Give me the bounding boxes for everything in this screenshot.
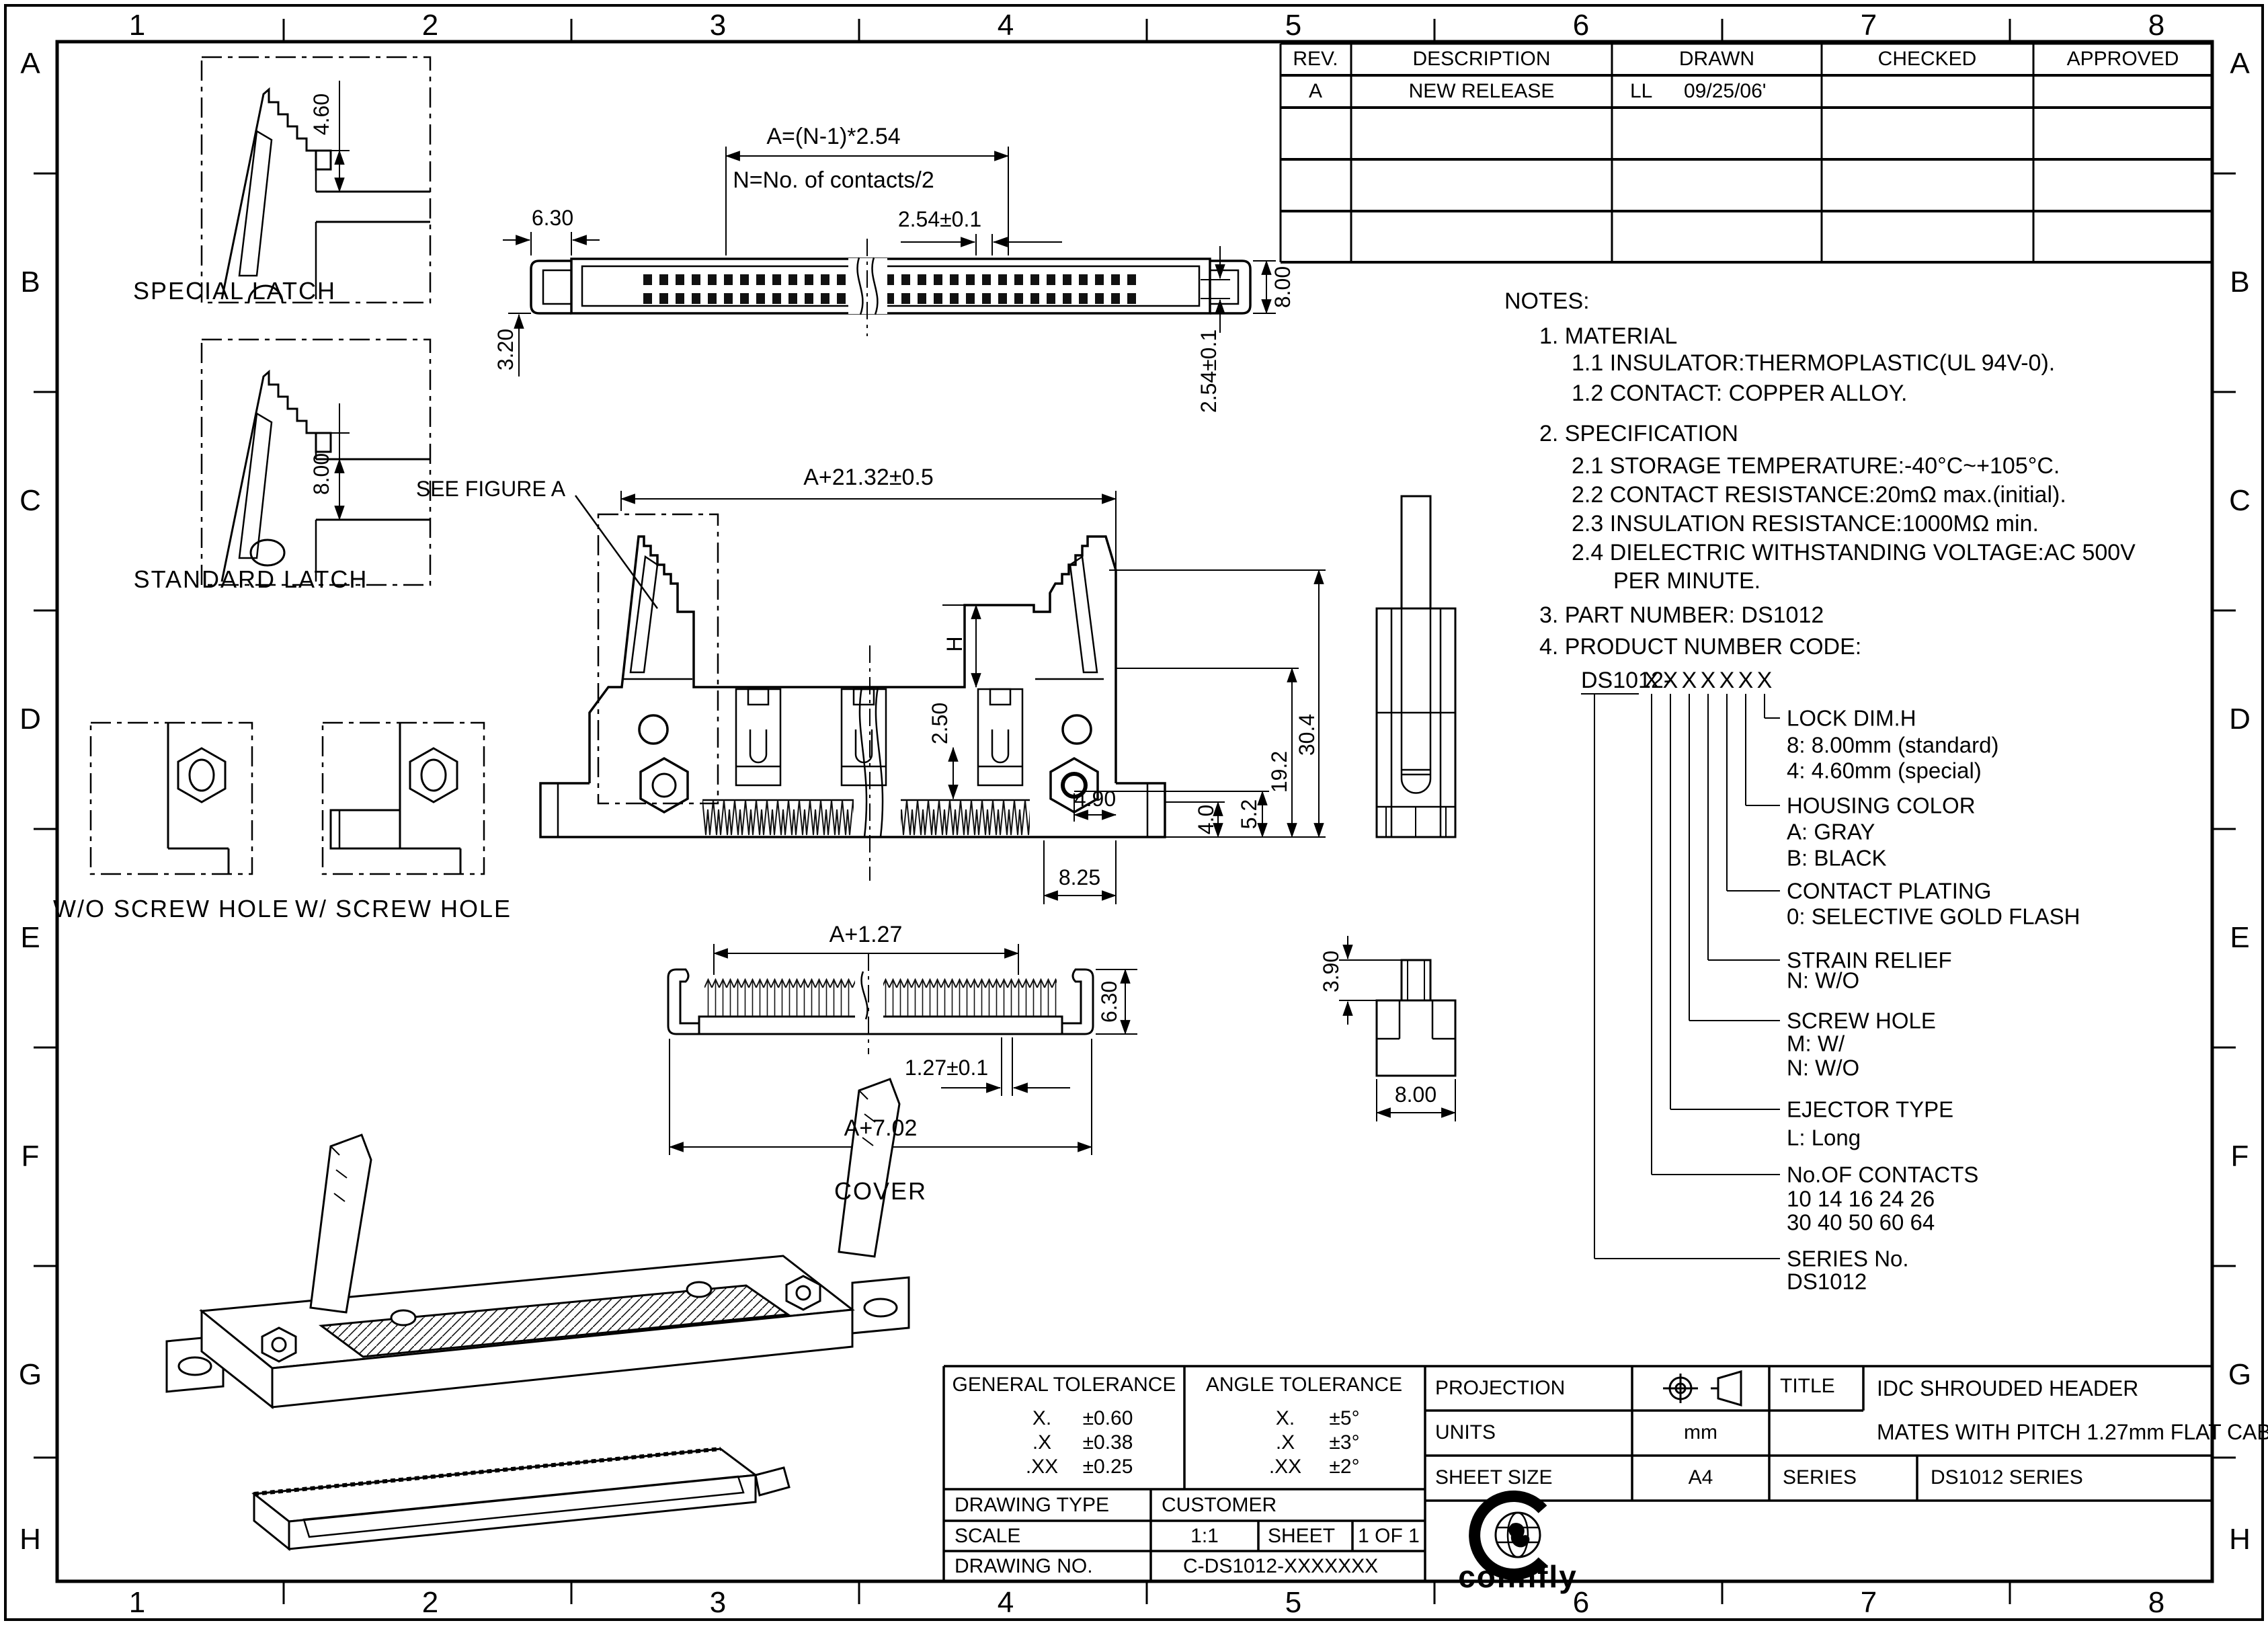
border-col-label: 5 bbox=[1285, 11, 1301, 40]
figure-a-reference: SEE FIGURE A bbox=[416, 478, 565, 500]
notes-title: NOTES: bbox=[1504, 290, 1590, 313]
tol-g1-value: ±0.60 bbox=[1083, 1409, 1133, 1429]
series-label: SERIES bbox=[1783, 1468, 1857, 1488]
border-col-label: 4 bbox=[998, 1588, 1014, 1618]
dim-lock-height-h: H bbox=[944, 636, 965, 651]
sheet-label: SHEET bbox=[1268, 1526, 1335, 1546]
tol-a3-value: ±2° bbox=[1329, 1457, 1359, 1477]
dim-foot-height: 4.0 bbox=[1195, 805, 1217, 834]
note-contact-resistance: 2.2 CONTACT RESISTANCE:20mΩ max.(initial… bbox=[1572, 483, 2066, 506]
dim-latch-offset: 3.20 bbox=[495, 329, 516, 370]
rev-table-header-approved: APPROVED bbox=[2067, 49, 2179, 69]
border-col-label: 4 bbox=[998, 11, 1014, 40]
scale-value: 1:1 bbox=[1190, 1526, 1219, 1546]
border-col-label: 2 bbox=[422, 1588, 438, 1618]
isometric-cover-view bbox=[254, 1449, 789, 1549]
product-code-leaders bbox=[1581, 694, 1780, 1259]
border-row-label: C bbox=[2229, 486, 2251, 516]
tol-g3-value: ±0.25 bbox=[1083, 1457, 1133, 1477]
tol-a3-label: .XX bbox=[1269, 1457, 1301, 1477]
dim-overall-width: A+21.32±0.5 bbox=[803, 466, 934, 489]
rev-table-header-checked: CHECKED bbox=[1878, 49, 1977, 69]
ejector-side-view bbox=[1339, 496, 1455, 1121]
border-col-label: 8 bbox=[2148, 11, 2164, 40]
dim-contact-tip: 2.50 bbox=[929, 703, 950, 744]
border-col-label: 6 bbox=[1573, 11, 1589, 40]
note-part-number: 3. PART NUMBER: DS1012 bbox=[1539, 604, 1824, 627]
tol-a1-value: ±5° bbox=[1329, 1409, 1359, 1429]
dim-hex-height: 5.2 bbox=[1238, 799, 1260, 829]
border-row-label: G bbox=[2228, 1360, 2251, 1390]
cover-view-label: COVER bbox=[834, 1179, 927, 1203]
sheet-size-value: A4 bbox=[1689, 1468, 1713, 1488]
border-row-label: F bbox=[22, 1142, 40, 1171]
projection-label: PROJECTION bbox=[1435, 1378, 1565, 1398]
dim-special-latch-height: 4.60 bbox=[311, 93, 332, 135]
isometric-header-view bbox=[167, 1079, 909, 1407]
dim-ejector-tab: 3.90 bbox=[1320, 951, 1342, 992]
standard-latch-label: STANDARD LATCH bbox=[134, 567, 368, 592]
border-col-label: 2 bbox=[422, 11, 438, 40]
rev-table-header-drawn: DRAWN bbox=[1679, 49, 1754, 69]
border-row-label: E bbox=[20, 923, 40, 953]
border-row-label: H bbox=[19, 1525, 41, 1554]
drawing-title-line2: MATES WITH PITCH 1.27mm FLAT CABLE bbox=[1877, 1421, 2268, 1443]
rev-table-drawn-by: LL bbox=[1630, 81, 1652, 102]
note-insulation-resistance: 2.3 INSULATION RESISTANCE:1000MΩ min. bbox=[1572, 512, 2039, 535]
dim-latch-length: 6.30 bbox=[532, 207, 573, 229]
dim-formula-n: N=No. of contacts/2 bbox=[733, 169, 934, 192]
note-specification: 2. SPECIFICATION bbox=[1539, 422, 1738, 445]
product-code-x: X bbox=[1682, 669, 1697, 692]
dim-body-width: 8.00 bbox=[1272, 266, 1293, 308]
note-storage-temp: 2.1 STORAGE TEMPERATURE:-40°C~+105°C. bbox=[1572, 454, 2060, 477]
title-label: TITLE bbox=[1780, 1376, 1835, 1396]
code-contacts-title: No.OF CONTACTS bbox=[1787, 1164, 1978, 1186]
dim-row-pitch: 2.54±0.1 bbox=[1198, 329, 1219, 413]
product-code-x: X bbox=[1663, 669, 1678, 692]
border-row-label: A bbox=[20, 49, 40, 79]
note-per-minute: PER MINUTE. bbox=[1613, 569, 1760, 592]
drawing-no-value: C-DS1012-XXXXXXX bbox=[1183, 1556, 1378, 1577]
dim-total-height: 30.4 bbox=[1296, 714, 1318, 756]
border-col-label: 8 bbox=[2148, 1588, 2164, 1618]
border-row-label: D bbox=[19, 705, 41, 734]
code-screw-opt2: N: W/O bbox=[1787, 1057, 1859, 1079]
dim-hex-to-edge: 4.90 bbox=[1074, 788, 1116, 809]
tol-a2-label: .X bbox=[1276, 1433, 1295, 1453]
dim-cover-pitch: 1.27±0.1 bbox=[905, 1057, 988, 1078]
rev-table-rev-value: A bbox=[1309, 81, 1322, 102]
rev-table-header-description: DESCRIPTION bbox=[1412, 49, 1550, 69]
screw-hole-details bbox=[91, 723, 484, 874]
tol-g2-value: ±0.38 bbox=[1083, 1433, 1133, 1453]
border-row-label: A bbox=[2230, 49, 2249, 79]
border-col-label: 1 bbox=[129, 1588, 145, 1618]
product-code-x: X bbox=[1644, 669, 1660, 692]
projection-symbol-icon bbox=[1663, 1372, 1741, 1405]
angle-tolerance-title: ANGLE TOLERANCE bbox=[1206, 1375, 1402, 1395]
border-col-label: 1 bbox=[129, 11, 145, 40]
code-plating-title: CONTACT PLATING bbox=[1787, 880, 1991, 902]
code-lock-title: LOCK DIM.H bbox=[1787, 707, 1916, 729]
dim-standard-latch-height: 8.00 bbox=[311, 453, 332, 495]
front-view bbox=[540, 491, 1326, 904]
connfly-logo-text: connfly bbox=[1458, 1561, 1578, 1592]
drawing-title-line1: IDC SHROUDED HEADER bbox=[1877, 1378, 2138, 1399]
customer-label: CUSTOMER bbox=[1162, 1495, 1277, 1515]
sheet-size-label: SHEET SIZE bbox=[1435, 1468, 1553, 1488]
product-code-x: X bbox=[1701, 669, 1716, 692]
dim-end-width: 8.25 bbox=[1059, 867, 1100, 888]
border-row-label: D bbox=[2229, 705, 2251, 734]
code-contacts-opt2: 30 40 50 60 64 bbox=[1787, 1212, 1935, 1234]
dim-cover-overall: A+7.02 bbox=[844, 1117, 918, 1140]
border-row-label: H bbox=[2229, 1525, 2251, 1554]
tol-g1-label: X. bbox=[1032, 1409, 1051, 1429]
dim-cover-inner: A+1.27 bbox=[829, 923, 903, 946]
border-col-label: 5 bbox=[1285, 1588, 1301, 1618]
code-housing-opt1: A: GRAY bbox=[1787, 821, 1875, 843]
tol-a1-label: X. bbox=[1276, 1409, 1295, 1429]
dim-shroud-height: 19.2 bbox=[1268, 751, 1290, 793]
code-screw-title: SCREW HOLE bbox=[1787, 1010, 1936, 1032]
tol-a2-value: ±3° bbox=[1329, 1433, 1359, 1453]
code-housing-title: HOUSING COLOR bbox=[1787, 795, 1976, 817]
tol-g2-label: .X bbox=[1032, 1433, 1051, 1453]
note-material: 1. MATERIAL bbox=[1539, 325, 1677, 348]
border-col-label: 3 bbox=[710, 1588, 726, 1618]
special-latch-label: SPECIAL LATCH bbox=[133, 279, 336, 303]
without-screw-hole-label: W/O SCREW HOLE bbox=[53, 897, 290, 921]
rev-table-description-value: NEW RELEASE bbox=[1409, 81, 1555, 102]
dim-ejector-width: 8.00 bbox=[1395, 1084, 1436, 1105]
note-product-code: 4. PRODUCT NUMBER CODE: bbox=[1539, 635, 1861, 658]
border-col-label: 3 bbox=[710, 11, 726, 40]
with-screw-hole-label: W/ SCREW HOLE bbox=[295, 897, 512, 921]
revision-table-grid bbox=[1281, 44, 2212, 262]
code-series-opt1: DS1012 bbox=[1787, 1271, 1867, 1293]
border-col-label: 7 bbox=[1861, 1588, 1877, 1618]
sheet-value: 1 OF 1 bbox=[1358, 1526, 1420, 1546]
code-lock-opt1: 8: 8.00mm (standard) bbox=[1787, 734, 1998, 756]
rev-table-drawn-date: 09/25/06' bbox=[1684, 81, 1767, 102]
border-row-label: B bbox=[2230, 268, 2249, 297]
tol-g3-label: .XX bbox=[1026, 1457, 1058, 1477]
code-lock-opt2: 4: 4.60mm (special) bbox=[1787, 760, 1982, 782]
note-contact: 1.2 CONTACT: COPPER ALLOY. bbox=[1572, 382, 1907, 405]
general-tolerance-title: GENERAL TOLERANCE bbox=[953, 1375, 1176, 1395]
border-row-label: E bbox=[2230, 923, 2249, 953]
code-ejector-title: EJECTOR TYPE bbox=[1787, 1099, 1953, 1121]
code-screw-opt1: M: W/ bbox=[1787, 1033, 1845, 1055]
border-row-label: F bbox=[2231, 1142, 2249, 1171]
series-value: DS1012 SERIES bbox=[1931, 1468, 2083, 1488]
code-housing-opt2: B: BLACK bbox=[1787, 847, 1887, 869]
code-plating-opt1: 0: SELECTIVE GOLD FLASH bbox=[1787, 906, 2080, 928]
scale-label: SCALE bbox=[955, 1526, 1020, 1546]
border-col-label: 7 bbox=[1861, 11, 1877, 40]
note-dielectric: 2.4 DIELECTRIC WITHSTANDING VOLTAGE:AC 5… bbox=[1572, 541, 2136, 564]
code-ejector-opt1: L: Long bbox=[1787, 1127, 1861, 1149]
units-value: mm bbox=[1684, 1423, 1717, 1443]
border-row-label: B bbox=[20, 268, 40, 297]
note-insulator: 1.1 INSULATOR:THERMOPLASTIC(UL 94V-0). bbox=[1572, 352, 2055, 374]
drawing-type-label: DRAWING TYPE bbox=[955, 1495, 1109, 1515]
units-label: UNITS bbox=[1435, 1423, 1496, 1443]
border-row-label: G bbox=[19, 1360, 42, 1390]
dim-contact-pitch: 2.54±0.1 bbox=[898, 208, 981, 230]
product-code-x: X bbox=[1738, 669, 1754, 692]
product-code-x: X bbox=[1719, 669, 1735, 692]
border-row-label: C bbox=[19, 486, 41, 516]
rev-table-header-rev: REV. bbox=[1293, 49, 1338, 69]
product-code-x: X bbox=[1757, 669, 1773, 692]
engineering-drawing-sheet: 1 2 3 4 5 6 7 8 1 2 3 4 5 6 7 8 A B C D … bbox=[0, 0, 2268, 1625]
dim-cover-height: 6.30 bbox=[1098, 981, 1120, 1023]
drawing-no-label: DRAWING NO. bbox=[955, 1556, 1093, 1577]
code-contacts-opt1: 10 14 16 24 26 bbox=[1787, 1188, 1935, 1210]
dim-formula-a: A=(N-1)*2.54 bbox=[766, 125, 900, 148]
code-series-title: SERIES No. bbox=[1787, 1248, 1909, 1270]
code-strain-opt1: N: W/O bbox=[1787, 969, 1859, 992]
